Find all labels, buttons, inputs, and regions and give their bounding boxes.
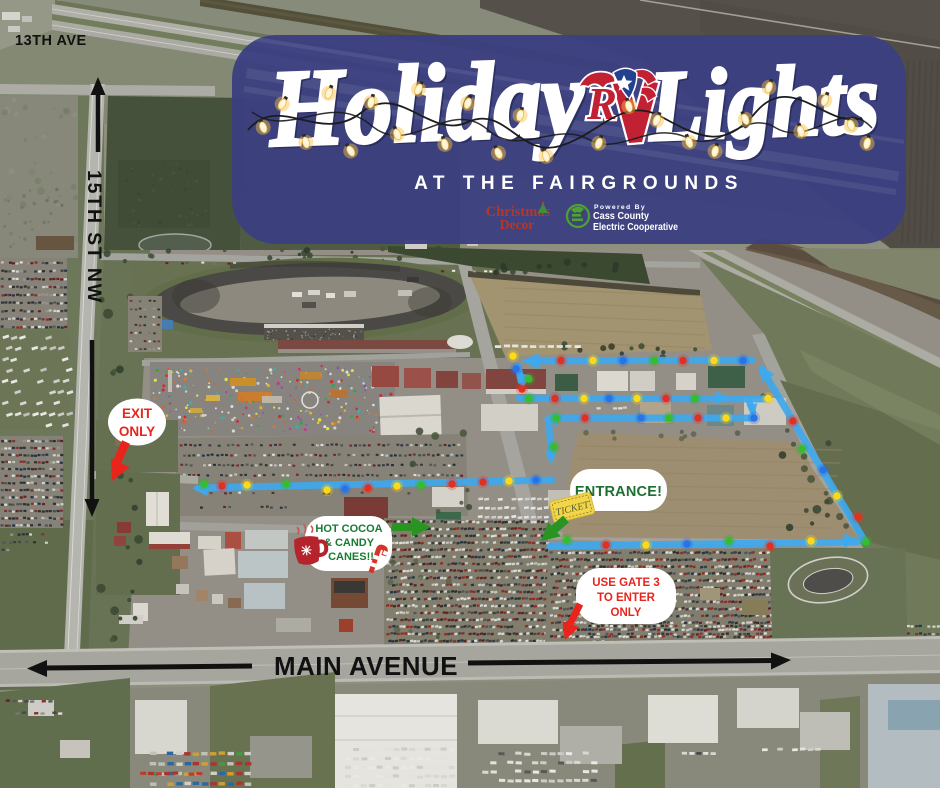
svg-text:TO ENTER: TO ENTER xyxy=(597,592,656,604)
svg-text:15TH ST NW: 15TH ST NW xyxy=(83,170,105,304)
svg-text:Electric Cooperative: Electric Cooperative xyxy=(593,221,678,233)
svg-text:AT THE FAIRGROUNDS: AT THE FAIRGROUNDS xyxy=(414,173,744,194)
svg-text:ONLY: ONLY xyxy=(119,424,155,439)
svg-text:R: R xyxy=(586,79,617,129)
svg-text:ONLY: ONLY xyxy=(611,607,642,619)
svg-text:HOT COCOA: HOT COCOA xyxy=(315,523,382,535)
svg-text:Lights: Lights xyxy=(646,44,880,163)
svg-text:& CANDY: & CANDY xyxy=(324,537,375,549)
svg-text:Holiday: Holiday xyxy=(267,38,587,170)
svg-text:USE GATE 3: USE GATE 3 xyxy=(592,577,660,589)
svg-text:13TH AVE: 13TH AVE xyxy=(15,33,87,49)
svg-text:EXIT: EXIT xyxy=(122,406,153,421)
svg-text:MAIN AVENUE: MAIN AVENUE xyxy=(274,651,458,681)
svg-text:Decor: Decor xyxy=(500,217,534,232)
svg-text:CANES!!: CANES!! xyxy=(328,551,374,563)
